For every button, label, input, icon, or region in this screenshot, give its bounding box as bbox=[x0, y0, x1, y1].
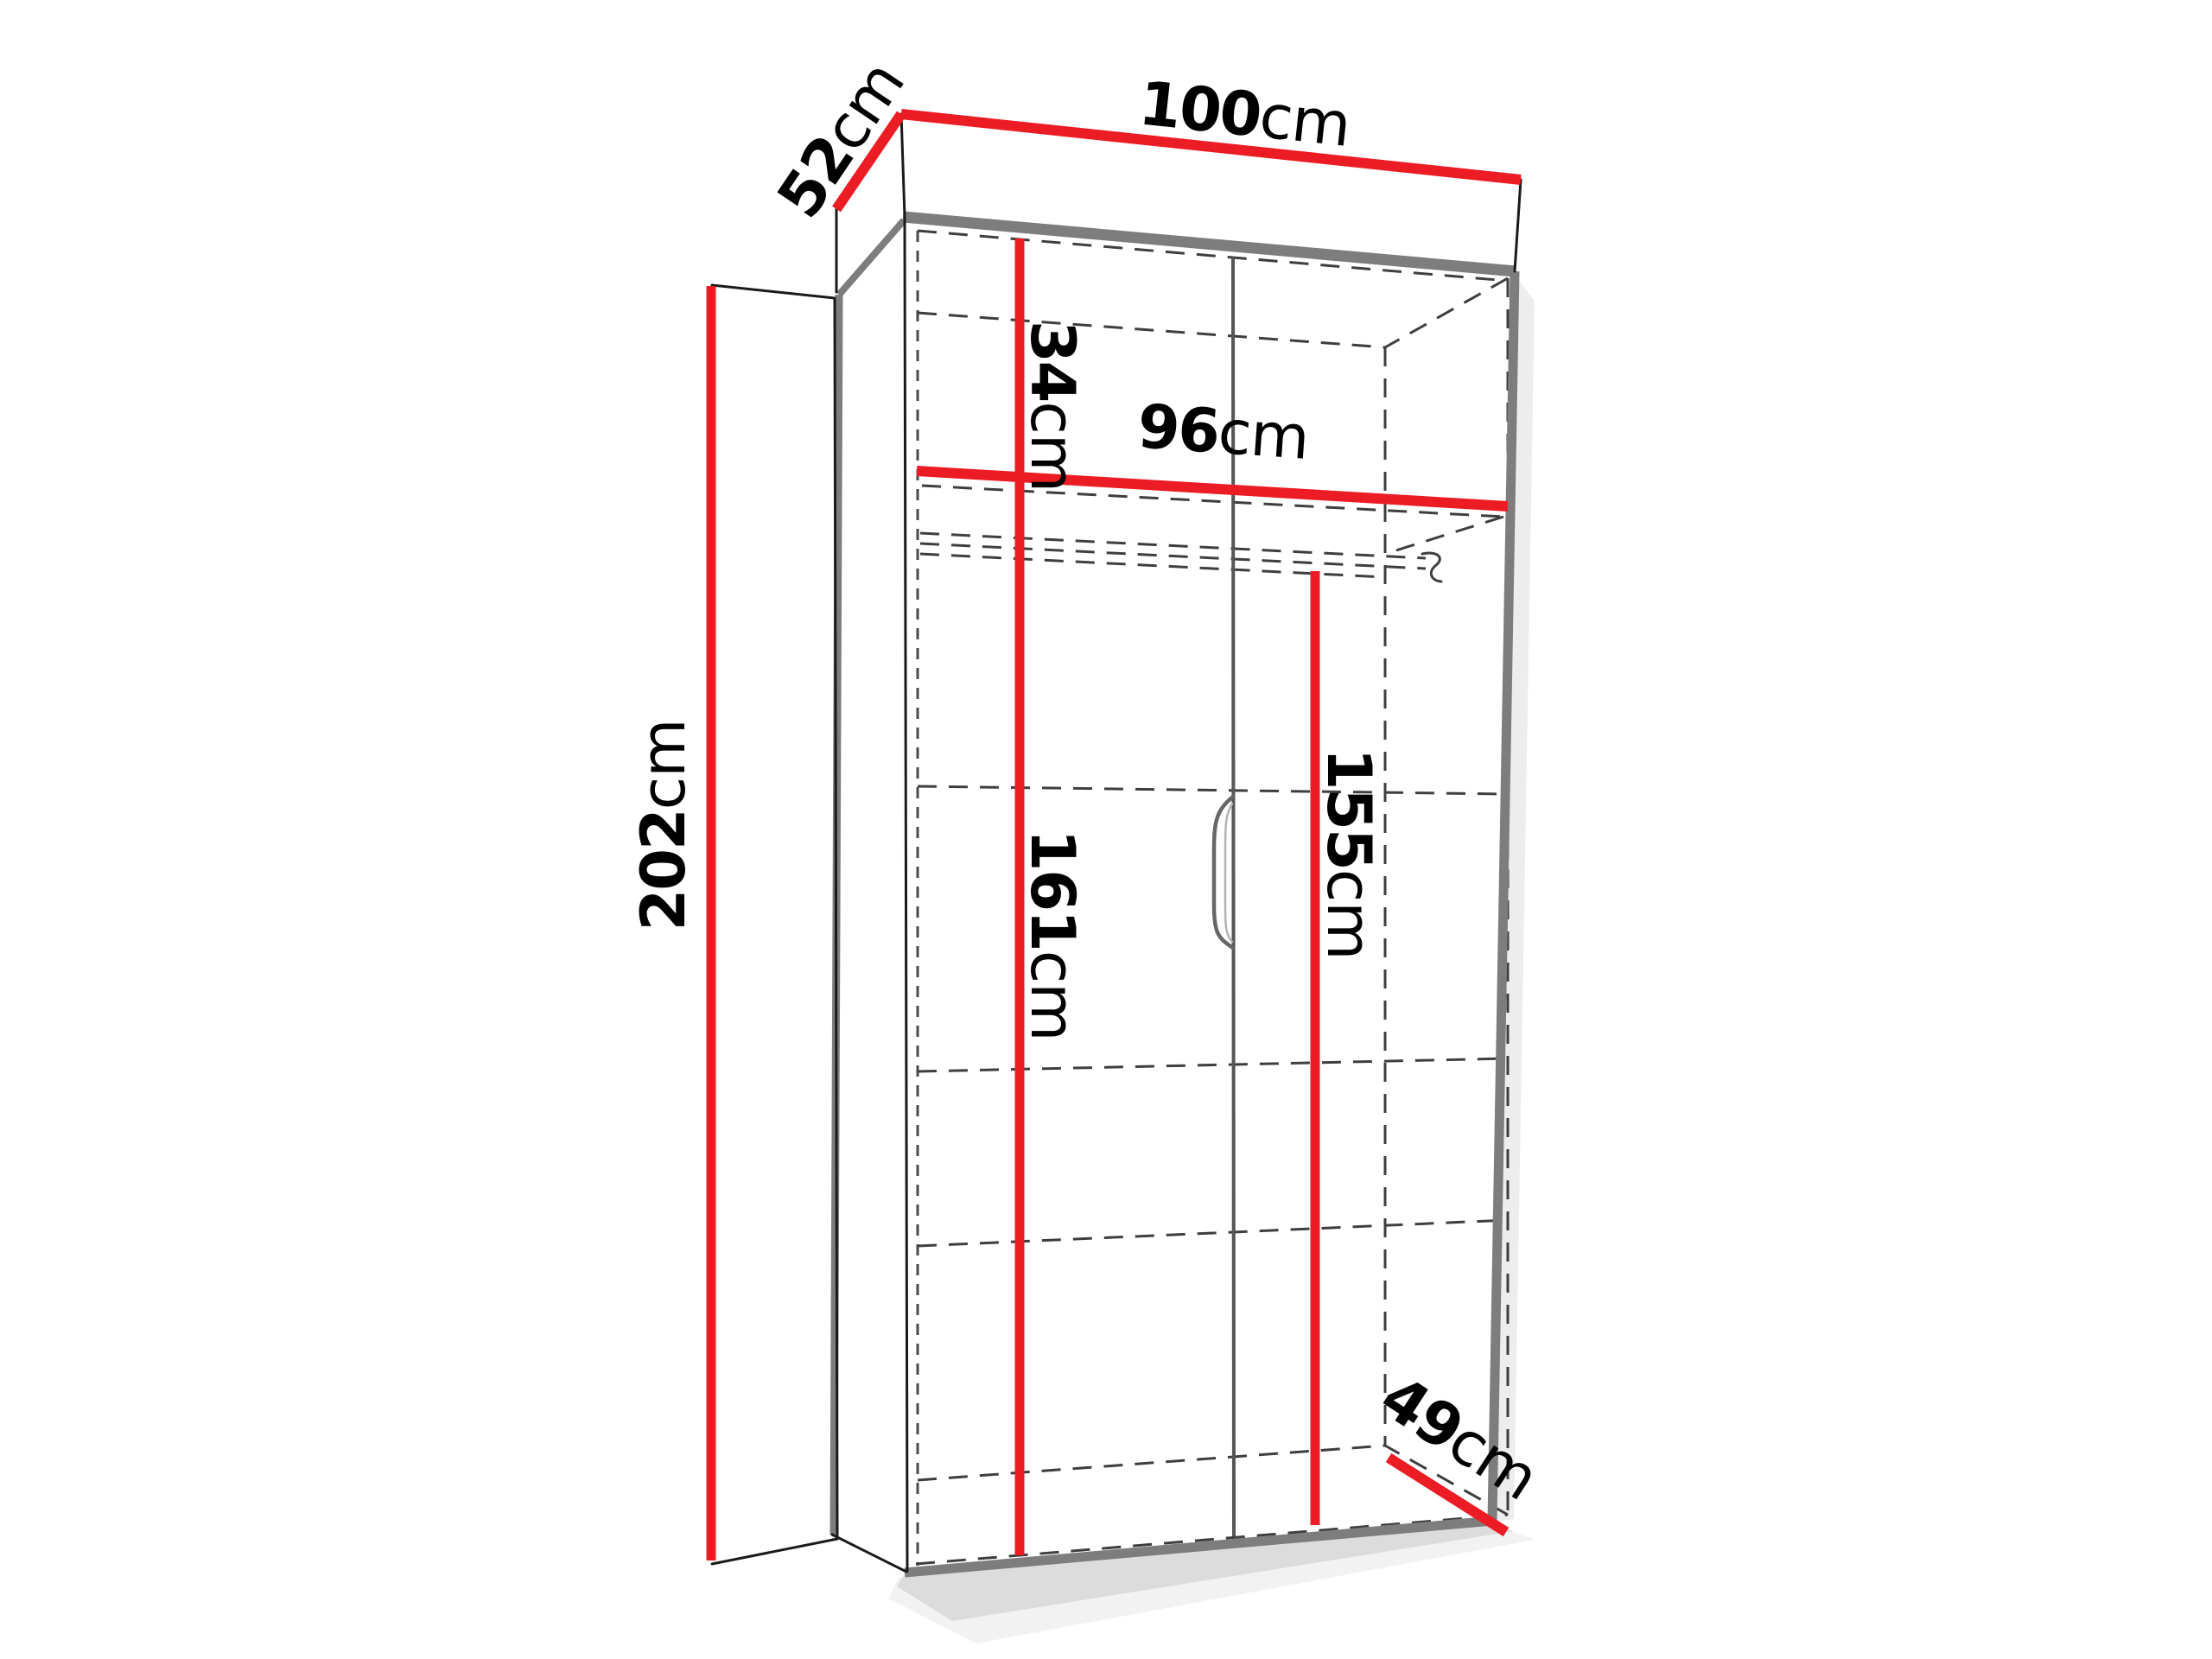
detached-side-panel bbox=[712, 285, 837, 1564]
left-side-face bbox=[834, 220, 907, 1571]
label-height-side: 202cm bbox=[628, 720, 699, 931]
label-top-compartment: 34cm bbox=[1017, 321, 1088, 492]
diagram-canvas: 100cm 52cm 202cm 34cm 96cm 161cm 155cm 4… bbox=[0, 0, 2212, 1659]
wardrobe-dimension-diagram: 100cm 52cm 202cm 34cm 96cm 161cm 155cm 4… bbox=[0, 0, 2212, 1659]
label-hanging-height: 155cm bbox=[1313, 748, 1384, 960]
label-interior-width: 96cm bbox=[1135, 391, 1311, 474]
label-interior-height: 161cm bbox=[1017, 829, 1088, 1041]
